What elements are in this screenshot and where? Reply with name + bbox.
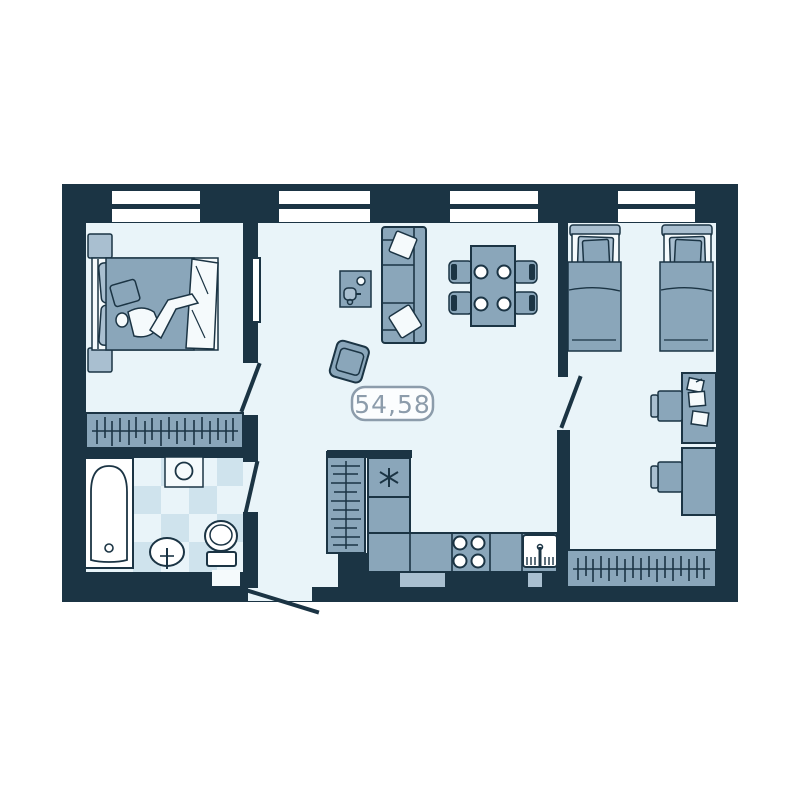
window-2 bbox=[279, 191, 370, 222]
plate-icon bbox=[498, 266, 511, 279]
desk-icon bbox=[682, 373, 716, 443]
dining-chair-icon bbox=[513, 261, 537, 283]
window-3 bbox=[450, 191, 538, 222]
fridge-icon bbox=[368, 458, 410, 497]
kitchen-counter-icon bbox=[368, 533, 557, 572]
wardrobe-icon bbox=[567, 550, 716, 587]
kitchen-base-wall bbox=[445, 572, 528, 587]
area-label: 54,58 bbox=[352, 387, 433, 420]
window-4 bbox=[618, 191, 695, 222]
plate-icon bbox=[475, 266, 488, 279]
wardrobe-icon bbox=[86, 413, 243, 448]
plate-icon bbox=[475, 298, 488, 311]
desk-chair-icon bbox=[651, 462, 682, 492]
closet-top-wall bbox=[327, 450, 412, 458]
floor-plan-canvas: 54,58 bbox=[0, 0, 800, 800]
single-bed-icon bbox=[660, 225, 713, 351]
bathtub-icon bbox=[85, 458, 133, 568]
paper-icon bbox=[691, 411, 709, 426]
window-1 bbox=[112, 191, 200, 222]
dining-chair-icon bbox=[449, 261, 473, 283]
wall-bathroom-hall bbox=[243, 512, 258, 588]
double-bed-icon bbox=[92, 258, 218, 350]
nightstand-icon bbox=[88, 234, 112, 258]
floor-plan-page: 54,58 bbox=[0, 0, 800, 800]
paper-icon bbox=[688, 391, 705, 406]
kitchen-cabinet-icon bbox=[368, 497, 410, 533]
wall-living-kidsroom bbox=[558, 223, 568, 377]
room-bathroom bbox=[85, 457, 243, 586]
kitchen-plinth-left bbox=[400, 572, 445, 587]
coffee-table-icon bbox=[340, 271, 371, 307]
hall-closet-icon bbox=[327, 452, 365, 553]
area-label-text: 54,58 bbox=[354, 390, 431, 419]
kitchen-plinth-right bbox=[528, 572, 542, 587]
single-bed-icon bbox=[568, 225, 621, 351]
desk-chair-icon bbox=[651, 391, 682, 421]
sofa-icon bbox=[382, 227, 426, 343]
nightstand-icon bbox=[88, 348, 112, 372]
dining-chair-icon bbox=[449, 292, 473, 314]
dining-chair-icon bbox=[513, 292, 537, 314]
toilet-niche bbox=[212, 570, 240, 586]
kitchen-sink-icon bbox=[523, 535, 557, 567]
plate-icon bbox=[498, 298, 511, 311]
washing-machine-icon bbox=[165, 457, 203, 487]
dining-table-icon bbox=[471, 246, 515, 326]
desk-icon bbox=[682, 448, 716, 515]
